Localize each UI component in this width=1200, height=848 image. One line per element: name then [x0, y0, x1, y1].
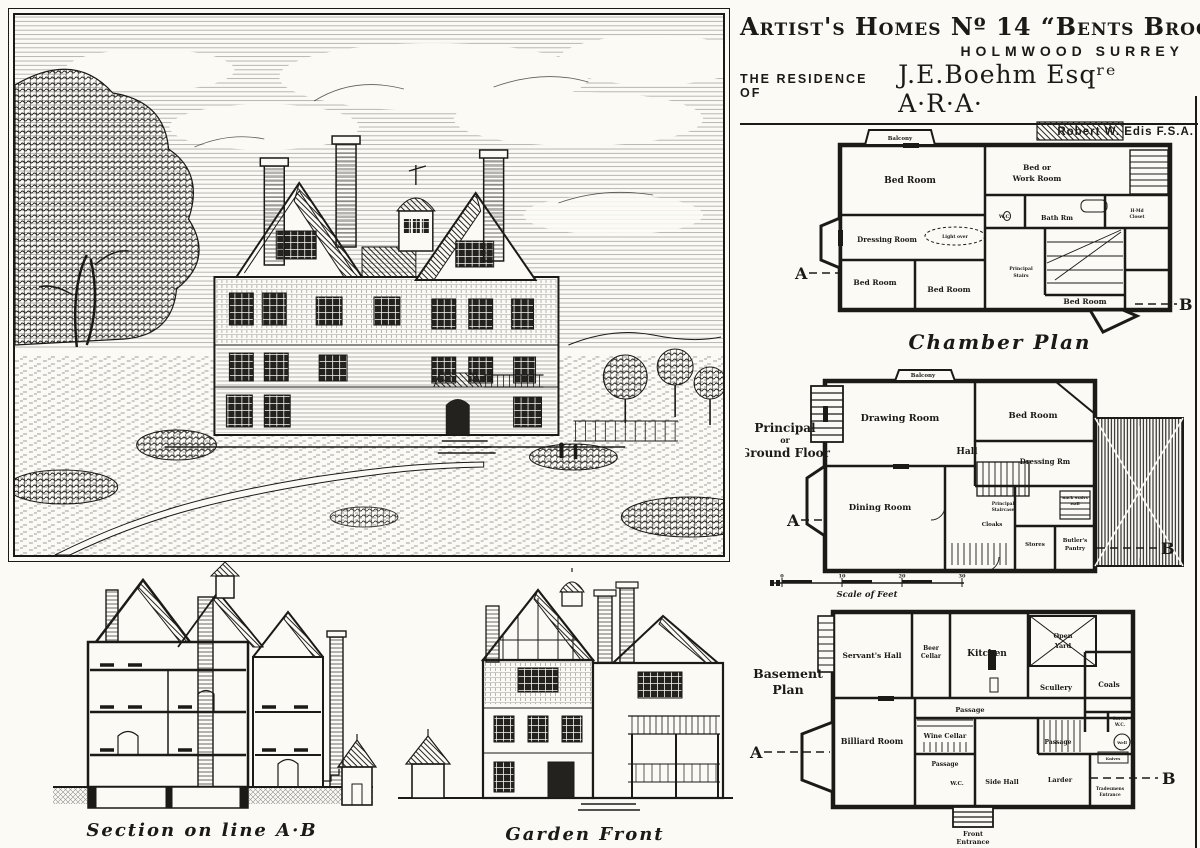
room-label-light-over: Light over — [942, 234, 968, 240]
room-label-closet: H·Md — [1130, 209, 1143, 214]
ground-floor-plan: A B Principal or Ground Floor Balcony Dr… — [745, 366, 1200, 584]
section-marker-b: B — [1161, 539, 1175, 558]
room-label-front-entrance: Front — [963, 830, 983, 838]
room-label-stores: Stores — [1025, 542, 1045, 548]
residence-prefix: The Residence of — [740, 72, 888, 100]
section-marker-a: A — [794, 264, 808, 283]
room-label-bed-se: Bed Room — [1063, 297, 1106, 306]
basement-plan: A B Basement Plan Servant's Hall Beer Ce… — [738, 592, 1200, 848]
room-label-kitchen: Kitchen — [967, 649, 1007, 659]
room-label-scullery: Scullery — [1040, 683, 1073, 692]
scale-tick-10: 10 — [839, 574, 846, 580]
room-label-open-yard: Open — [1053, 632, 1072, 640]
house-perspective-illustration — [15, 15, 723, 555]
room-label-passage-kitchen: Passage — [955, 706, 984, 714]
room-label-dressing: Dressing Room — [857, 235, 917, 244]
section-marker-b: B — [1179, 295, 1193, 314]
room-label-tradesmens-entrance-2: Entrance — [1099, 792, 1121, 797]
room-label-cloaks: Cloaks — [982, 522, 1003, 528]
room-label-principal-stairs-2: Stairs — [1013, 273, 1029, 279]
room-label-passage-center: Passage — [932, 761, 959, 768]
room-label-larder: Larder — [1048, 776, 1073, 784]
garden-front-cupola — [560, 568, 584, 606]
room-label-balcony: Balcony — [888, 136, 913, 142]
room-label-bed-room: Bed Room — [884, 176, 936, 186]
room-label-front-entrance-2: Entrance — [956, 838, 989, 846]
room-label-billiard-room: Billiard Room — [841, 736, 904, 746]
room-label-principal-stairs: Principal — [1009, 266, 1033, 272]
scale-tick-20: 20 — [899, 574, 906, 580]
room-label-bath: Bath Rm — [1041, 214, 1073, 222]
front-entrance-steps — [953, 807, 993, 827]
perspective-view-frame — [8, 8, 730, 562]
basement-external-stair — [818, 616, 834, 672]
section-marker-a: A — [786, 511, 800, 530]
scale-tick-30: 30 — [959, 574, 966, 580]
room-label-back-stairs: Back Stairs — [1062, 495, 1089, 500]
room-label-beer-cellar: Beer — [923, 645, 940, 652]
room-label-hall: Hall — [956, 447, 978, 457]
room-label-butlers-pantry: Butler's — [1063, 538, 1087, 544]
plate-location: Holmwood Surrey — [740, 43, 1198, 59]
plate-title: Artist's Homes Nº 14 “Bents Brook” — [740, 12, 1198, 41]
garden-front-drawing — [388, 568, 738, 820]
section-marker-b: B — [1162, 769, 1176, 788]
room-label-bed-or-work-2: Work Room — [1012, 174, 1062, 183]
chamber-plan-caption: Chamber Plan — [880, 330, 1120, 354]
section-marker-a: A — [749, 743, 763, 762]
room-label-bed-s: Bed Room — [927, 285, 970, 294]
ground-label-line2: or — [780, 435, 790, 445]
section-drawing — [48, 562, 378, 820]
room-label-butlers-pantry-2: Pantry — [1065, 546, 1086, 552]
section-house — [53, 562, 373, 808]
room-label-knives: Knives — [1106, 756, 1121, 761]
room-label-wc: W.C. — [949, 781, 964, 787]
basement-label-line1: Basement — [753, 666, 823, 681]
room-label-wine-cellar: Wine Cellar — [923, 732, 967, 740]
room-label-wc: W.C. — [998, 214, 1011, 220]
room-label-open-yard-2: Yard — [1054, 642, 1072, 650]
room-label-back-stairs-2: Hall — [1070, 501, 1080, 506]
room-label-balcony: Balcony — [911, 373, 936, 379]
ground-label-line1: Principal — [754, 421, 816, 435]
garden-front-caption: Garden Front — [465, 824, 705, 845]
engraving-plate: Artist's Homes Nº 14 “Bents Brook” Holmw… — [0, 0, 1200, 848]
scale-tick-0: 0 — [780, 574, 784, 580]
title-block: Artist's Homes Nº 14 “Bents Brook” Holmw… — [740, 12, 1198, 125]
chamber-plan: A B Balcony Bed Room Bed or Work Room W.… — [785, 120, 1195, 352]
ground-label-line3: Ground Floor — [745, 446, 831, 460]
room-label-passage-right: Passage — [1045, 739, 1072, 746]
garden-hut — [406, 729, 450, 798]
section-caption: Section on line A·B — [62, 820, 342, 841]
room-label-tradesmens-entrance: Tradesmens — [1096, 786, 1125, 791]
garden-front-house — [398, 568, 733, 810]
perspective-view-inner-frame — [13, 13, 725, 557]
room-label-beer-cellar-2: Cellar — [921, 653, 942, 660]
room-label-servants-hall: Servant's Hall — [842, 651, 901, 660]
room-label-dining-room: Dining Room — [849, 503, 912, 513]
room-label-principal-staircase-2: Staircase — [992, 508, 1015, 513]
room-label-drawing-room: Drawing Room — [861, 413, 940, 424]
room-label-bed-room: Bed Room — [1009, 411, 1058, 421]
room-label-side-hall: Side Hall — [985, 778, 1019, 786]
section-garden-hut — [338, 734, 376, 805]
room-label-well: Well — [1116, 740, 1127, 745]
room-label-dressing-rm: Dressing Rm — [1020, 457, 1071, 466]
residence-line: The Residence of J.E.Boehm Esqʳᵉ A·R·A· — [740, 60, 1198, 118]
room-label-servants-wc-2: W.C. — [1114, 722, 1126, 727]
resident-name: J.E.Boehm Esqʳᵉ A·R·A· — [898, 60, 1198, 118]
scale-bar-blocks — [770, 580, 932, 586]
room-label-servants-wc: Servts — [1113, 716, 1128, 721]
room-label-bed-sw: Bed Room — [853, 278, 896, 287]
room-label-principal-staircase: Principal — [992, 502, 1015, 507]
room-label-closet-2: Closet — [1129, 215, 1144, 220]
basement-label: Basement Plan — [753, 666, 823, 697]
room-label-coals: Coals — [1098, 680, 1119, 689]
room-label-bed-or-work: Bed or — [1023, 163, 1052, 172]
basement-label-line2: Plan — [772, 682, 803, 697]
